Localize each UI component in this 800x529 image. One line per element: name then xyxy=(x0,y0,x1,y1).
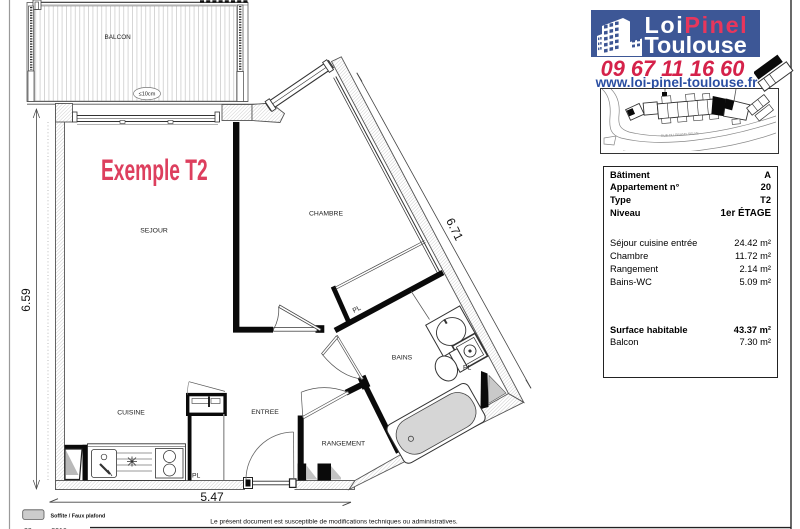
svg-text:ENTREE: ENTREE xyxy=(251,409,279,416)
svg-text:6.59: 6.59 xyxy=(19,288,33,312)
svg-text:CHAMBRE: CHAMBRE xyxy=(309,211,343,218)
svg-text:BALCON: BALCON xyxy=(105,34,132,41)
svg-text:PL: PL xyxy=(192,473,201,480)
svg-text:RUE DU GRAND SELVE: RUE DU GRAND SELVE xyxy=(661,131,700,138)
svg-text:6.71: 6.71 xyxy=(443,216,466,243)
svg-text:≤10cm: ≤10cm xyxy=(139,92,156,98)
svg-text:PL: PL xyxy=(352,305,363,315)
svg-text:SEJOUR: SEJOUR xyxy=(140,228,168,235)
svg-text:BAINS: BAINS xyxy=(392,355,413,362)
svg-text:Le présent document est suscep: Le présent document est susceptible de m… xyxy=(210,519,458,526)
svg-text:CUISINE: CUISINE xyxy=(117,410,145,417)
svg-text:Soffite / Faux plafond: Soffite / Faux plafond xyxy=(51,513,106,519)
svg-text:5.47: 5.47 xyxy=(200,490,224,504)
svg-text:PL: PL xyxy=(463,365,472,372)
svg-text:RANGEMENT: RANGEMENT xyxy=(322,441,365,448)
